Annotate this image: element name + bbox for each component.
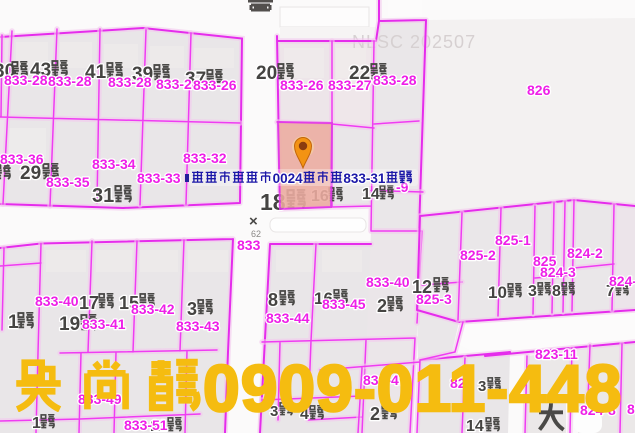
svg-text:833-33: 833-33 (137, 170, 181, 186)
svg-text:833-43: 833-43 (176, 318, 220, 334)
svg-text:833-28: 833-28 (48, 73, 92, 89)
svg-text:833-27: 833-27 (328, 77, 372, 93)
svg-text:833-36: 833-36 (0, 151, 44, 167)
svg-text:833-31: 833-31 (343, 171, 386, 186)
svg-text:833-45: 833-45 (322, 296, 366, 312)
svg-text:31: 31 (92, 185, 114, 207)
svg-text:62: 62 (251, 229, 261, 239)
svg-text:833-26: 833-26 (193, 77, 237, 93)
svg-text:×: × (249, 213, 258, 230)
svg-text:825-1: 825-1 (495, 232, 531, 248)
svg-text:1: 1 (32, 415, 41, 432)
svg-text:17: 17 (79, 293, 99, 313)
svg-text:826: 826 (527, 82, 551, 98)
svg-text:8: 8 (552, 283, 561, 300)
svg-text:833-41: 833-41 (82, 316, 126, 332)
svg-text:833-40: 833-40 (35, 293, 79, 309)
svg-text:2: 2 (377, 296, 387, 316)
svg-text:824-: 824- (609, 273, 635, 289)
svg-text:833-26: 833-26 (280, 77, 324, 93)
svg-text:833-44: 833-44 (266, 310, 310, 326)
svg-text:824-3: 824-3 (540, 264, 576, 280)
svg-text:825-2: 825-2 (460, 247, 496, 263)
svg-text:8: 8 (268, 290, 278, 310)
svg-text:14: 14 (362, 186, 380, 203)
svg-text:0024: 0024 (273, 171, 304, 186)
svg-text:833-40: 833-40 (366, 274, 410, 290)
svg-text:825-3: 825-3 (416, 291, 452, 307)
svg-text:833-32: 833-32 (183, 150, 227, 166)
svg-text:833-42: 833-42 (131, 301, 175, 317)
svg-text:1: 1 (8, 312, 19, 333)
svg-text:0909-011-448: 0909-011-448 (203, 351, 622, 425)
svg-text:833-51: 833-51 (124, 417, 168, 433)
svg-text:833-28: 833-28 (373, 72, 417, 88)
svg-text:8: 8 (627, 401, 635, 417)
svg-text:833: 833 (237, 237, 261, 253)
svg-text:3: 3 (187, 299, 197, 319)
svg-text:10: 10 (488, 283, 507, 302)
svg-text:20: 20 (256, 63, 277, 84)
svg-text:19: 19 (59, 314, 80, 335)
svg-text:3: 3 (528, 283, 537, 300)
svg-text:824-2: 824-2 (567, 245, 603, 261)
svg-text:833-35: 833-35 (46, 174, 90, 190)
svg-text:833-34: 833-34 (92, 156, 136, 172)
svg-text:833-28: 833-28 (108, 74, 152, 90)
svg-text:833-28: 833-28 (4, 72, 48, 88)
